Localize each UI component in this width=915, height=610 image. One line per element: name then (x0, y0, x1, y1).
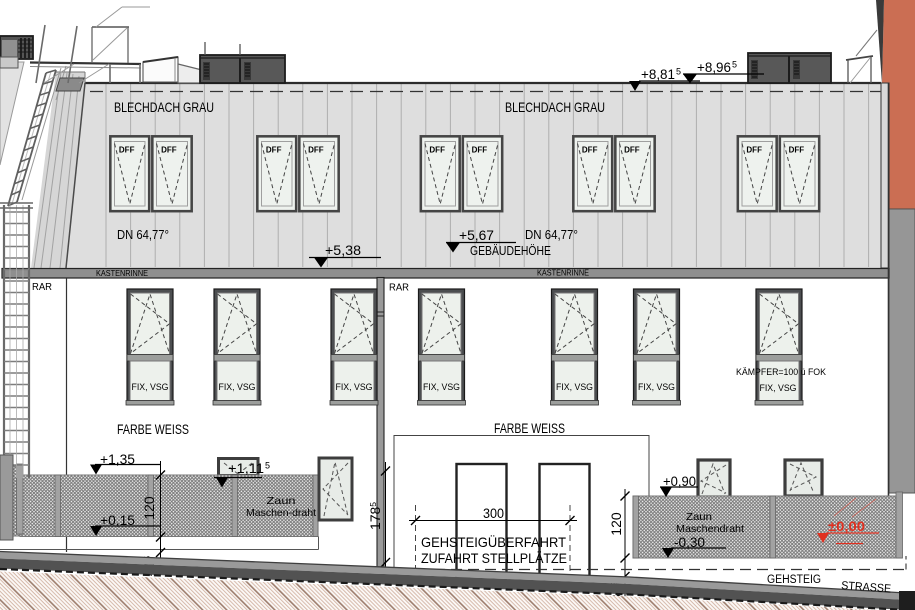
svg-text:GEHSTEIG: GEHSTEIG (767, 574, 821, 586)
svg-text:GEHSTEIGÜBERFAHRT: GEHSTEIGÜBERFAHRT (421, 533, 566, 550)
svg-text:GEBÄUDEHÖHE: GEBÄUDEHÖHE (470, 243, 551, 258)
svg-text:120: 120 (608, 512, 624, 536)
svg-text:+8,96: +8,96 (697, 60, 731, 75)
svg-text:DFF: DFF (624, 146, 640, 155)
svg-text:BLECHDACH GRAU: BLECHDACH GRAU (114, 99, 214, 115)
svg-text:DFF: DFF (789, 146, 805, 155)
svg-text:DFF: DFF (582, 146, 598, 155)
svg-text:FIX, VSG: FIX, VSG (219, 382, 256, 393)
svg-text:DFF: DFF (429, 146, 445, 155)
svg-text:FIX, VSG: FIX, VSG (760, 383, 797, 394)
svg-text:+1,11: +1,11 (228, 461, 264, 476)
svg-text:5: 5 (265, 461, 270, 471)
svg-text:5: 5 (676, 67, 681, 77)
svg-text:RAR: RAR (32, 281, 52, 293)
svg-text:Maschen-draht: Maschen-draht (246, 507, 316, 519)
svg-text:ZUFAHRT STELLPLÄTZE: ZUFAHRT STELLPLÄTZE (421, 550, 567, 566)
svg-text:DN 64,77°: DN 64,77° (525, 227, 578, 242)
svg-text:DFF: DFF (119, 146, 135, 155)
svg-text:+5,38: +5,38 (325, 243, 361, 258)
svg-text:300: 300 (483, 506, 504, 521)
svg-text:DFF: DFF (746, 146, 762, 155)
svg-text:DFF: DFF (472, 146, 488, 155)
svg-text:KASTENRINNE: KASTENRINNE (537, 269, 589, 278)
svg-text:KÄMPFER=100 ü FOK: KÄMPFER=100 ü FOK (736, 367, 827, 378)
svg-text:FIX, VSG: FIX, VSG (638, 382, 675, 393)
svg-text:FIX, VSG: FIX, VSG (132, 382, 169, 393)
svg-text:BLECHDACH GRAU: BLECHDACH GRAU (505, 99, 605, 115)
svg-text:FIX, VSG: FIX, VSG (336, 382, 373, 393)
svg-text:FARBE WEISS: FARBE WEISS (494, 421, 565, 436)
svg-text:FARBE WEISS: FARBE WEISS (117, 422, 189, 437)
svg-text:120: 120 (141, 496, 157, 520)
svg-text:+8,81: +8,81 (641, 67, 675, 82)
svg-text:FIX, VSG: FIX, VSG (423, 382, 460, 393)
svg-text:Zaun: Zaun (267, 495, 296, 507)
svg-text:RAR: RAR (389, 282, 409, 294)
svg-text:±0,00: ±0,00 (828, 519, 865, 534)
svg-text:DN 64,77°: DN 64,77° (117, 227, 169, 242)
svg-text:KASTENRINNE: KASTENRINNE (96, 269, 148, 278)
svg-text:DFF: DFF (266, 146, 282, 155)
svg-text:Maschendraht: Maschendraht (676, 523, 744, 535)
svg-text:DFF: DFF (308, 146, 324, 155)
svg-text:5: 5 (732, 60, 737, 70)
svg-text:DFF: DFF (161, 146, 177, 155)
svg-text:+5,67: +5,67 (459, 228, 494, 243)
svg-text:Zaun: Zaun (686, 511, 712, 523)
svg-text:FIX, VSG: FIX, VSG (556, 382, 593, 393)
